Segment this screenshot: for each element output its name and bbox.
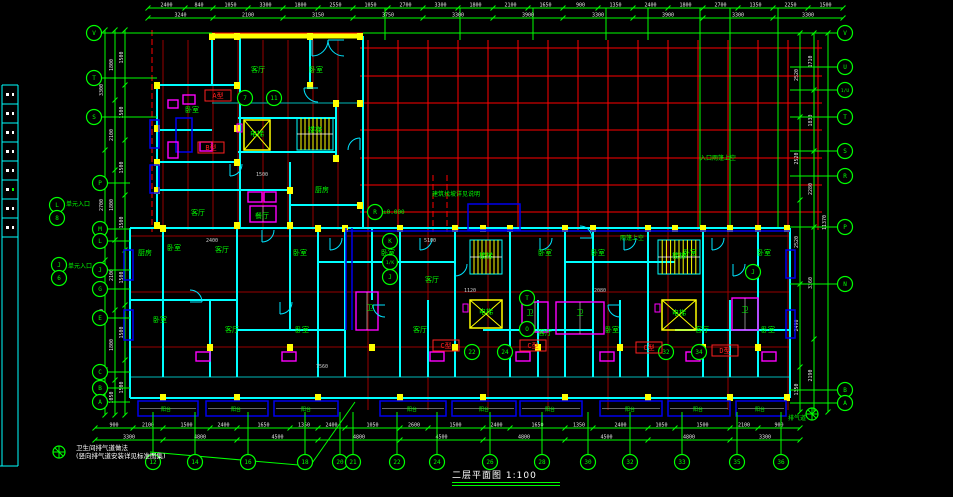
svg-text:2400: 2400 <box>325 423 337 429</box>
svg-text:U: U <box>843 64 847 71</box>
svg-text:24: 24 <box>433 459 441 466</box>
svg-text:2080: 2080 <box>594 288 606 294</box>
cad-drawing-canvas[interactable]: 2400840105033001800255010502700330018002… <box>0 0 953 497</box>
svg-text:厨房: 厨房 <box>138 248 152 257</box>
svg-text:B型: B型 <box>205 143 216 152</box>
svg-text:24: 24 <box>501 349 509 356</box>
annotation-labels: 单元入口单元入口建筑找坡详见说明±0.000雨篷上空入口雨篷上空排气道 <box>66 154 806 422</box>
svg-text:1/K: 1/K <box>386 260 394 266</box>
svg-text:1350: 1350 <box>609 3 621 9</box>
svg-text:J: J <box>98 267 102 274</box>
room-labels: 卧室客厅卧室客厅餐厅厨房卧室厨房客厅卧室卧室客厅卧室卧室卧室卧室卧室客厅卧室客厅… <box>138 65 775 337</box>
svg-text:1050: 1050 <box>366 423 378 429</box>
svg-text:32: 32 <box>626 459 634 466</box>
svg-text:1500: 1500 <box>119 51 125 63</box>
svg-text:卧室: 卧室 <box>538 248 552 257</box>
svg-text:1800: 1800 <box>109 339 115 351</box>
svg-text:R: R <box>843 173 847 180</box>
svg-text:阳台: 阳台 <box>479 406 489 413</box>
svg-text:2400: 2400 <box>644 3 656 9</box>
svg-text:2400: 2400 <box>490 423 502 429</box>
svg-text:卧室: 卧室 <box>757 248 771 257</box>
svg-text:1800: 1800 <box>679 3 691 9</box>
svg-text:G: G <box>98 286 102 293</box>
svg-text:2400: 2400 <box>206 238 218 244</box>
svg-text:V: V <box>843 30 847 37</box>
svg-text:1050: 1050 <box>364 3 376 9</box>
note-line-1: 卫生间排气道做法 <box>76 444 166 452</box>
svg-text:S: S <box>843 148 847 155</box>
svg-text:餐厅: 餐厅 <box>255 211 269 220</box>
svg-text:T: T <box>843 114 847 121</box>
svg-text:客厅: 客厅 <box>251 65 265 74</box>
svg-text:840: 840 <box>194 3 203 9</box>
svg-text:建筑找坡详见说明: 建筑找坡详见说明 <box>432 190 480 198</box>
svg-text:J: J <box>388 274 392 281</box>
svg-text:4800: 4800 <box>194 435 206 441</box>
svg-text:卫: 卫 <box>367 304 374 312</box>
svg-text:J: J <box>751 269 755 276</box>
svg-text:1500: 1500 <box>119 216 125 228</box>
svg-text:V: V <box>92 30 96 37</box>
svg-text:2100: 2100 <box>109 129 115 141</box>
svg-text:4500: 4500 <box>600 435 612 441</box>
svg-text:B: B <box>843 387 847 394</box>
svg-text:R: R <box>373 209 377 216</box>
svg-text:18: 18 <box>301 459 309 466</box>
svg-text:4800: 4800 <box>353 435 365 441</box>
svg-text:3300: 3300 <box>759 435 771 441</box>
svg-text:1500: 1500 <box>180 423 192 429</box>
svg-text:卧室: 卧室 <box>605 325 619 334</box>
svg-text:11: 11 <box>270 95 278 102</box>
svg-text:J: J <box>57 262 61 269</box>
svg-text:阳台: 阳台 <box>407 406 417 413</box>
drawing-title-block: 二层平面图 1:100 <box>452 468 560 483</box>
svg-text:雨篷上空: 雨篷上空 <box>620 234 644 242</box>
svg-text:28: 28 <box>538 459 546 466</box>
svg-text:C型: C型 <box>527 341 538 350</box>
svg-text:2600: 2600 <box>408 423 420 429</box>
svg-text:4800: 4800 <box>518 435 530 441</box>
svg-text:P: P <box>843 224 847 231</box>
svg-text:2250: 2250 <box>784 3 796 9</box>
title-underline <box>452 482 560 483</box>
svg-text:1830: 1830 <box>808 114 814 126</box>
svg-text:客厅: 客厅 <box>425 275 439 284</box>
svg-text:2100: 2100 <box>109 269 115 281</box>
svg-text:客厅: 客厅 <box>225 325 239 334</box>
svg-text:3240: 3240 <box>174 13 186 19</box>
svg-text:6: 6 <box>57 275 61 282</box>
cad-drawing-viewport: 2400840105033001800255010502700330018002… <box>0 0 953 497</box>
svg-text:21: 21 <box>349 459 357 466</box>
svg-text:33: 33 <box>678 459 686 466</box>
svg-text:T: T <box>92 75 96 82</box>
svg-text:入口雨篷上空: 入口雨篷上空 <box>700 154 736 162</box>
svg-text:1800: 1800 <box>109 199 115 211</box>
svg-text:D型: D型 <box>719 346 730 355</box>
svg-text:单元入口: 单元入口 <box>68 262 92 270</box>
svg-text:3900: 3900 <box>522 13 534 19</box>
svg-text:16: 16 <box>244 459 252 466</box>
svg-text:卫: 卫 <box>527 309 534 317</box>
svg-text:C型: C型 <box>440 341 451 350</box>
svg-text:阳台: 阳台 <box>693 406 703 413</box>
svg-text:2400: 2400 <box>160 3 172 9</box>
svg-text:1350: 1350 <box>298 423 310 429</box>
svg-text:B: B <box>98 385 102 392</box>
svg-text:20: 20 <box>336 459 344 466</box>
svg-text:阳台: 阳台 <box>231 406 241 413</box>
svg-text:C: C <box>98 369 102 376</box>
svg-text:3750: 3750 <box>382 13 394 19</box>
svg-text:1120: 1120 <box>464 288 476 294</box>
svg-text:A: A <box>843 400 847 407</box>
svg-text:N: N <box>843 281 847 288</box>
svg-text:卧室: 卧室 <box>153 315 167 324</box>
svg-text:1500: 1500 <box>819 3 831 9</box>
svg-text:2550: 2550 <box>329 3 341 9</box>
svg-text:楼梯: 楼梯 <box>308 125 322 134</box>
svg-text:3300: 3300 <box>99 84 105 96</box>
svg-text:3300: 3300 <box>434 3 446 9</box>
note-line-2: (竖向排气道安装详见标准图集) <box>76 452 166 460</box>
balcony-labels: 阳台阳台阳台阳台阳台阳台阳台阳台阳台 <box>161 406 765 413</box>
svg-text:卫: 卫 <box>577 309 584 317</box>
svg-text:2400: 2400 <box>614 423 626 429</box>
svg-text:36: 36 <box>777 459 785 466</box>
svg-text:3300: 3300 <box>123 435 135 441</box>
svg-text:厨房: 厨房 <box>315 185 329 194</box>
svg-text:卧室: 卧室 <box>293 248 307 257</box>
svg-text:客厅: 客厅 <box>191 208 205 217</box>
svg-text:3150: 3150 <box>312 13 324 19</box>
svg-text:卧室: 卧室 <box>167 243 181 252</box>
svg-text:L: L <box>55 202 59 209</box>
svg-text:2190: 2190 <box>808 369 814 381</box>
svg-text:2100: 2100 <box>504 3 516 9</box>
svg-text:5100: 5100 <box>424 238 436 244</box>
svg-text:卫: 卫 <box>742 306 749 314</box>
svg-text:阳台: 阳台 <box>625 406 635 413</box>
svg-text:L: L <box>98 238 102 245</box>
svg-text:1350: 1350 <box>573 423 585 429</box>
svg-text:电梯: 电梯 <box>250 129 264 138</box>
svg-text:客厅: 客厅 <box>538 328 552 337</box>
svg-text:卧室: 卧室 <box>309 65 323 74</box>
svg-text:1500: 1500 <box>696 423 708 429</box>
svg-text:3300: 3300 <box>452 13 464 19</box>
svg-text:32: 32 <box>662 349 670 356</box>
svg-text:卧室: 卧室 <box>591 248 605 257</box>
svg-text:1/U: 1/U <box>841 88 849 94</box>
svg-text:阳台: 阳台 <box>545 406 555 413</box>
stair-cores <box>297 118 700 274</box>
svg-text:1800: 1800 <box>469 3 481 9</box>
svg-text:1500: 1500 <box>119 161 125 173</box>
svg-text:客厅: 客厅 <box>215 245 229 254</box>
svg-text:26: 26 <box>486 459 494 466</box>
svg-text:卧室: 卧室 <box>381 248 395 257</box>
svg-text:T: T <box>525 295 529 302</box>
svg-text:900: 900 <box>576 3 585 9</box>
svg-text:8: 8 <box>55 215 59 222</box>
svg-text:22: 22 <box>468 349 476 356</box>
svg-text:A型: A型 <box>212 91 223 100</box>
svg-text:C型: C型 <box>643 343 654 352</box>
svg-text:30: 30 <box>584 459 592 466</box>
svg-text:1500: 1500 <box>449 423 461 429</box>
svg-text:S: S <box>92 114 96 121</box>
svg-text:楼梯: 楼梯 <box>672 251 686 260</box>
svg-text:排气道: 排气道 <box>788 414 806 422</box>
svg-text:1800: 1800 <box>109 59 115 71</box>
svg-text:14: 14 <box>191 459 199 466</box>
svg-text:卧室: 卧室 <box>295 325 309 334</box>
svg-text:3300: 3300 <box>732 13 744 19</box>
svg-text:A: A <box>98 399 102 406</box>
svg-text:11370: 11370 <box>822 215 828 230</box>
svg-text:1050: 1050 <box>224 3 236 9</box>
svg-text:阳台: 阳台 <box>301 406 311 413</box>
svg-text:2520: 2520 <box>794 152 800 164</box>
svg-text:2520: 2520 <box>794 236 800 248</box>
svg-text:2700: 2700 <box>99 199 105 211</box>
svg-text:客厅: 客厅 <box>695 325 709 334</box>
svg-text:单元入口: 单元入口 <box>66 200 90 208</box>
left-legend-table <box>0 85 18 466</box>
svg-text:1800: 1800 <box>294 3 306 9</box>
svg-text:卧室: 卧室 <box>761 325 775 334</box>
svg-text:3300: 3300 <box>259 3 271 9</box>
svg-text:卧室: 卧室 <box>185 105 199 114</box>
svg-text:2700: 2700 <box>714 3 726 9</box>
svg-text:阳台: 阳台 <box>161 406 171 413</box>
svg-text:E: E <box>98 315 102 322</box>
svg-text:M: M <box>98 226 102 233</box>
svg-text:3300: 3300 <box>592 13 604 19</box>
svg-text:900: 900 <box>109 423 118 429</box>
svg-text:34: 34 <box>695 349 703 356</box>
svg-text:900: 900 <box>774 423 783 429</box>
svg-text:O: O <box>525 326 529 333</box>
drawing-title: 二层平面图 1:100 <box>452 468 560 481</box>
svg-text:2520: 2520 <box>794 69 800 81</box>
svg-text:1650: 1650 <box>539 3 551 9</box>
svg-text:电梯: 电梯 <box>479 307 493 316</box>
svg-text:1050: 1050 <box>655 423 667 429</box>
svg-text:电梯: 电梯 <box>672 308 686 317</box>
svg-text:7560: 7560 <box>316 364 328 370</box>
svg-text:35: 35 <box>733 459 741 466</box>
svg-text:3900: 3900 <box>662 13 674 19</box>
svg-text:2100: 2100 <box>738 423 750 429</box>
svg-text:3300: 3300 <box>802 13 814 19</box>
svg-text:2100: 2100 <box>142 423 154 429</box>
svg-text:4500: 4500 <box>271 435 283 441</box>
svg-text:12: 12 <box>149 459 157 466</box>
svg-text:1350: 1350 <box>749 3 761 9</box>
svg-text:K: K <box>388 238 392 245</box>
vent-shaft-note: 卫生间排气道做法 (竖向排气道安装详见标准图集) <box>76 444 166 460</box>
svg-text:楼梯: 楼梯 <box>479 251 493 260</box>
svg-text:P: P <box>98 180 102 187</box>
svg-text:±0.000: ±0.000 <box>383 209 405 216</box>
door-swings <box>190 40 745 317</box>
svg-text:客厅: 客厅 <box>413 325 427 334</box>
svg-text:4800: 4800 <box>683 435 695 441</box>
svg-text:2280: 2280 <box>808 183 814 195</box>
svg-text:1500: 1500 <box>256 172 268 178</box>
svg-text:3360: 3360 <box>808 277 814 289</box>
svg-text:阳台: 阳台 <box>755 406 765 413</box>
svg-text:2100: 2100 <box>242 13 254 19</box>
svg-text:7: 7 <box>243 95 247 102</box>
svg-text:1710: 1710 <box>808 55 814 67</box>
grid-bubbles-bottom: 121416182021222426283032333536 <box>146 412 789 470</box>
svg-text:1650: 1650 <box>257 423 269 429</box>
svg-text:22: 22 <box>393 459 401 466</box>
svg-text:2700: 2700 <box>399 3 411 9</box>
svg-text:2400: 2400 <box>217 423 229 429</box>
